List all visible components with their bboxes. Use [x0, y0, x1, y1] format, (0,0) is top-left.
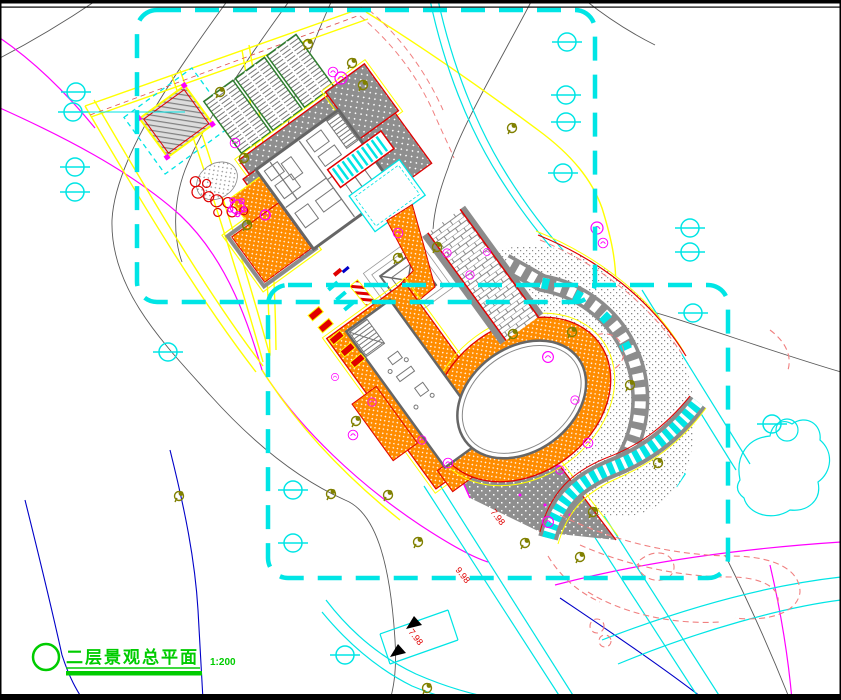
title-underline	[66, 671, 202, 676]
cad-site-plan: 7.98 9.98 7.98 二层景观总平面 1:200	[0, 0, 841, 700]
site-plan-canvas: 7.98 9.98 7.98 二层景观总平面 1:200	[0, 0, 841, 700]
drawing-scale: 1:200	[210, 657, 236, 668]
drawing-title: 二层景观总平面	[66, 647, 199, 667]
